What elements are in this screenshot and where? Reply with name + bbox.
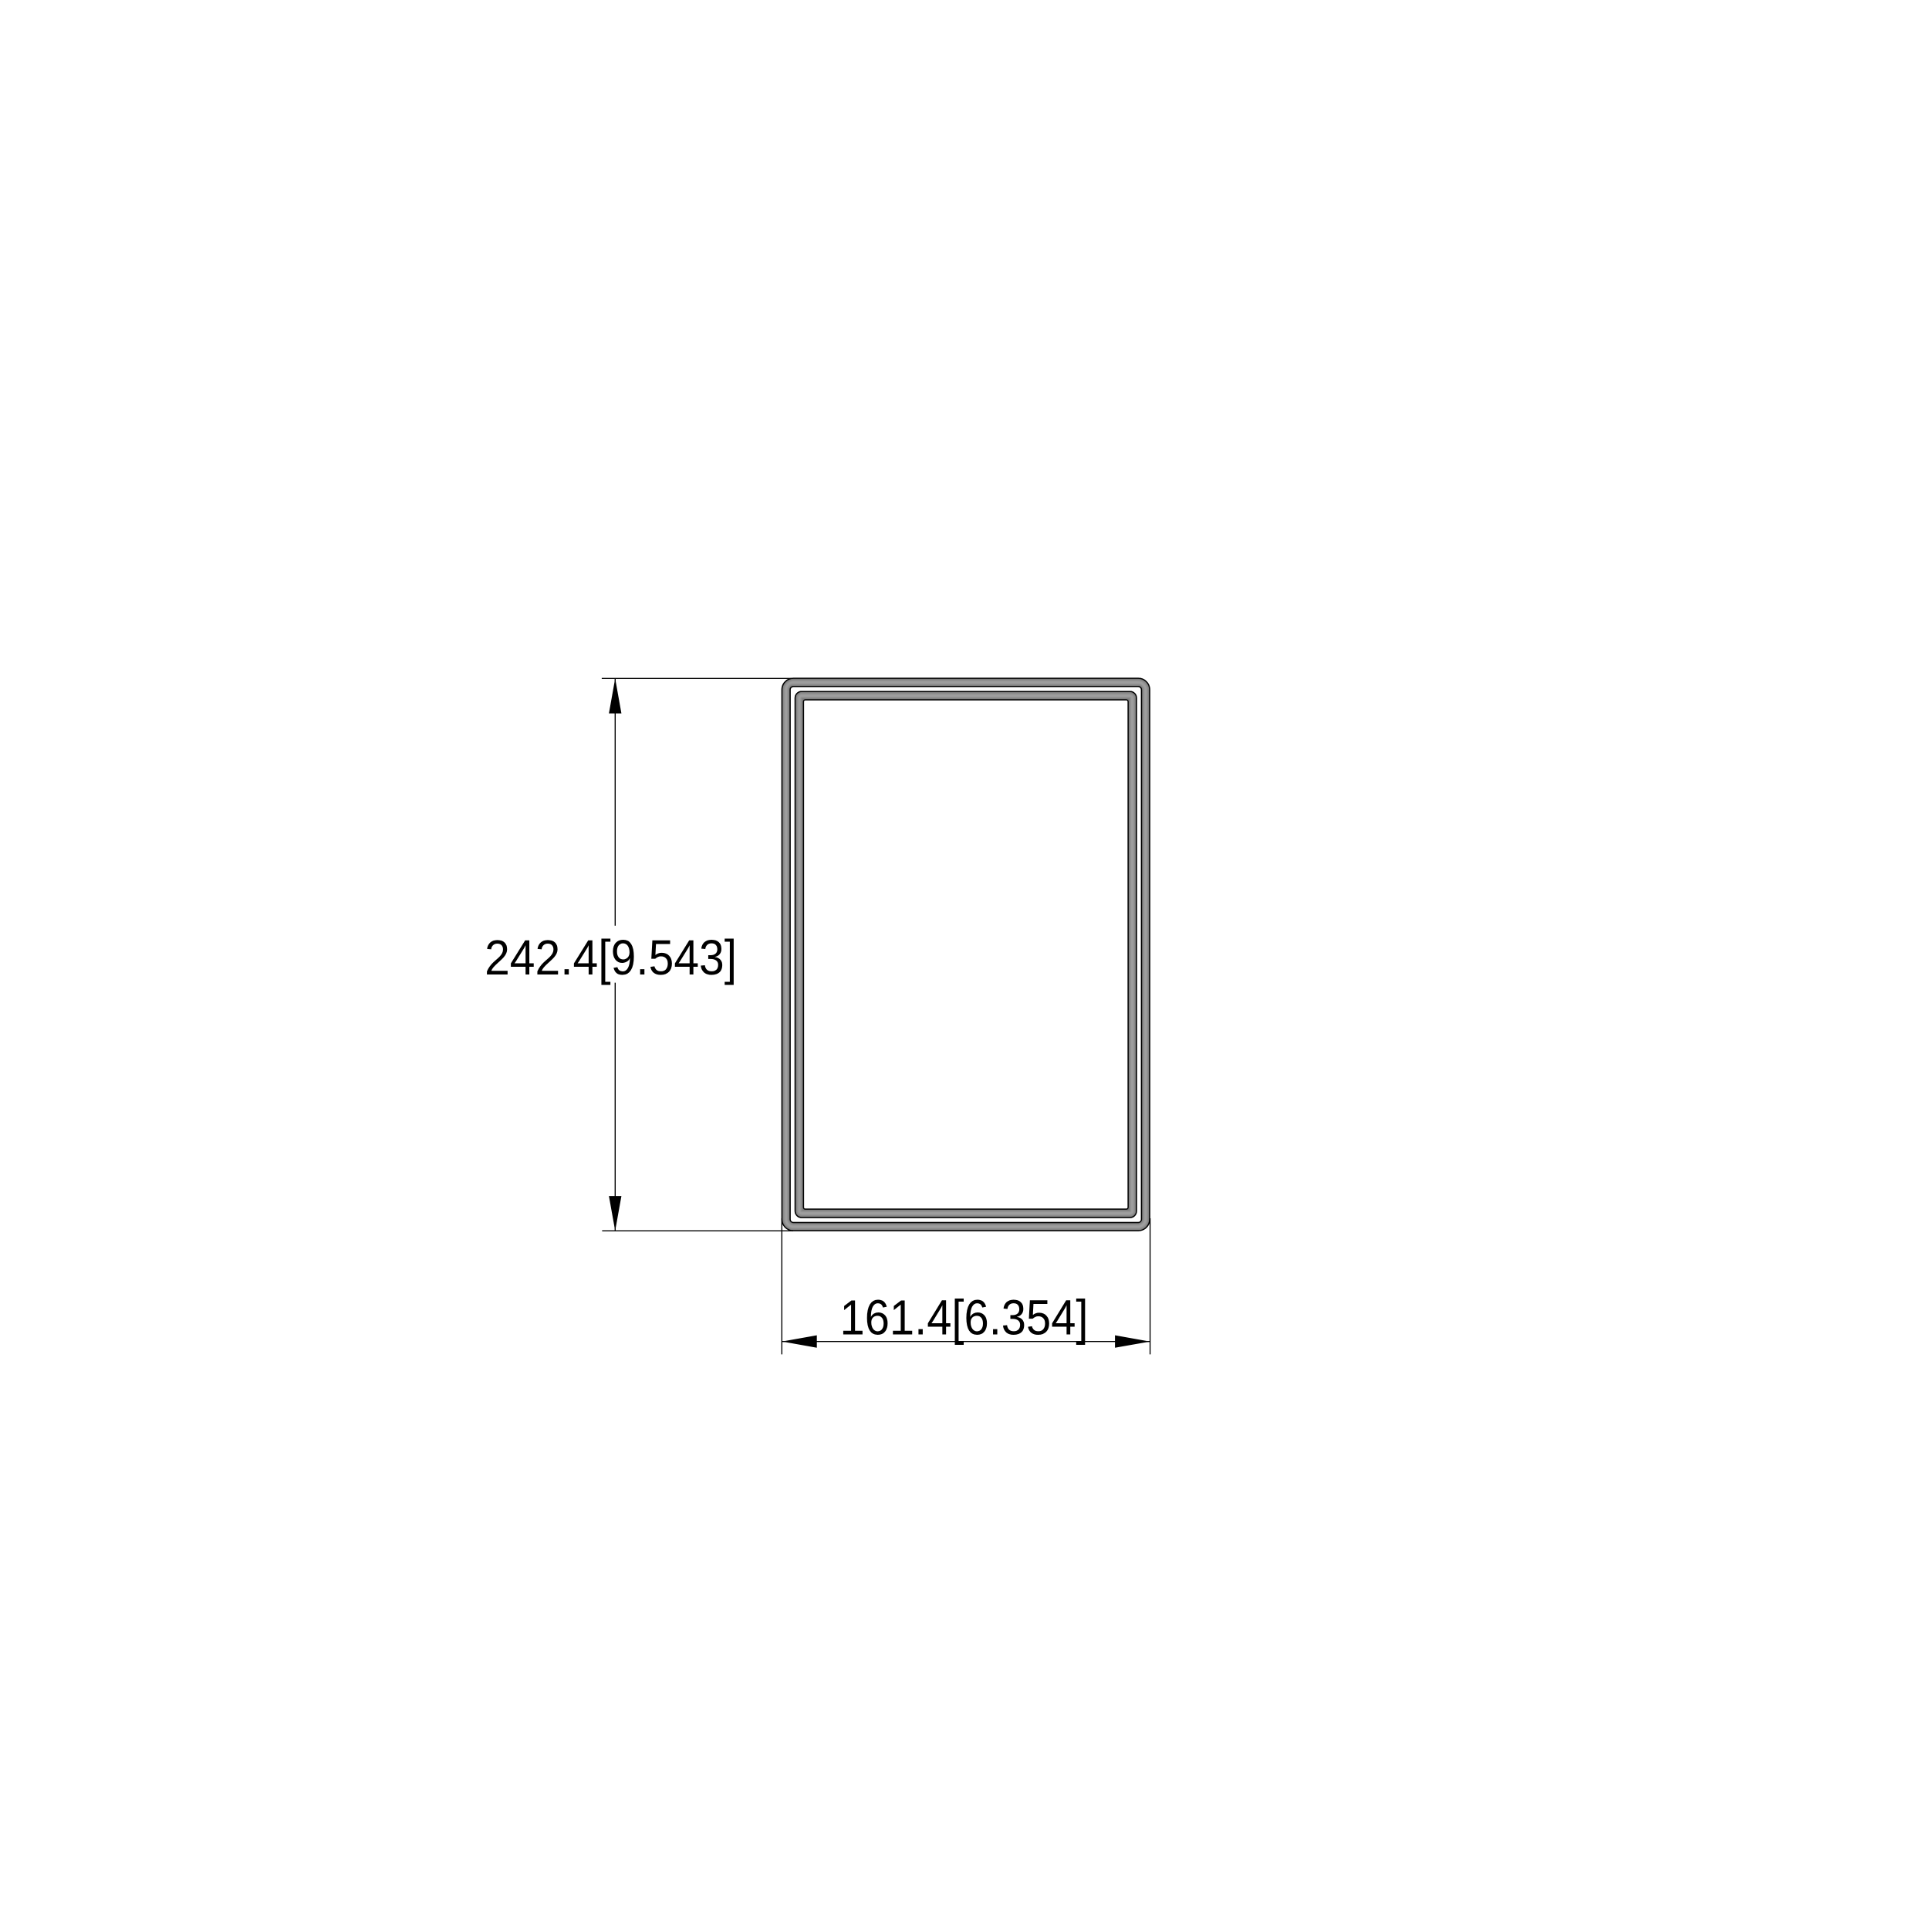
svg-text:242.4[9.543]: 242.4[9.543]	[485, 930, 737, 985]
svg-text:161.4[6.354]: 161.4[6.354]	[840, 1290, 1089, 1346]
